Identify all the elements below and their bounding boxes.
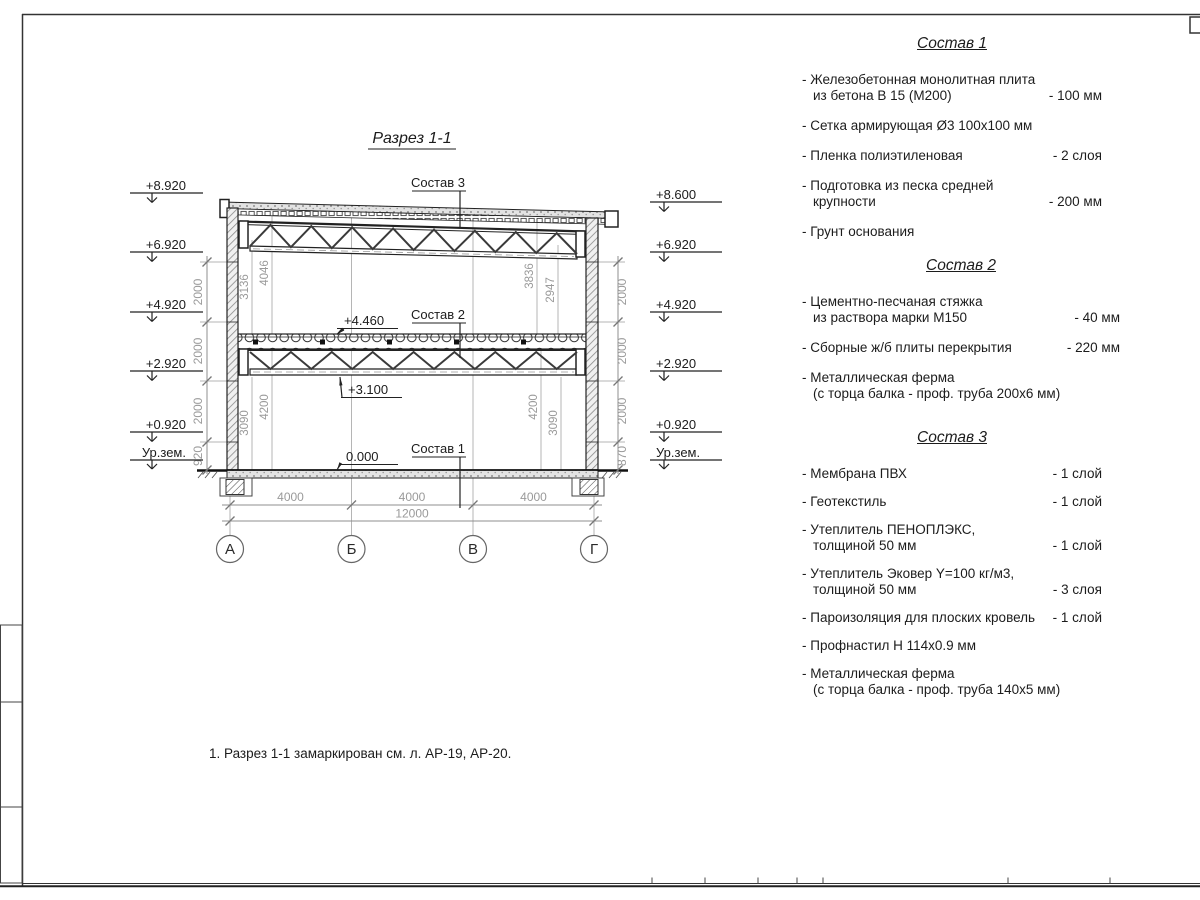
floor-slab-hollow-core <box>238 334 586 349</box>
grid-letter: В <box>468 541 478 558</box>
composition-title: Состав 1 <box>802 34 1102 54</box>
svg-text:+4.920: +4.920 <box>656 297 696 312</box>
composition-item: - Пленка полиэтиленовая - 2 слоя <box>802 148 1102 164</box>
composition-item: - Металлическая ферма (с торца балка - п… <box>802 370 1120 402</box>
drawing-title: Разрез 1-1 <box>368 130 456 149</box>
dim-label: 4200 <box>528 394 540 420</box>
composition-item: - Грунт основания <box>802 224 1102 240</box>
grid-letter: Г <box>590 541 598 558</box>
wall-right <box>586 218 598 470</box>
composition-item: - Сетка армирующая Ø3 100x100 мм <box>802 118 1102 134</box>
svg-text:+2.920: +2.920 <box>656 356 696 371</box>
elevation-marker: +2.920 <box>650 356 722 381</box>
elevation-marker: +6.920 <box>650 237 722 262</box>
dim-label: 4046 <box>259 260 271 286</box>
span-dim: 4000 <box>520 490 547 504</box>
composition-title: Состав 3 <box>802 428 1102 448</box>
elevation-marker: +6.920 <box>130 237 203 262</box>
wall-left <box>227 208 238 470</box>
floor-truss <box>239 349 585 375</box>
svg-text:+8.920: +8.920 <box>146 178 186 193</box>
elevation-marker: +8.920 <box>130 178 203 203</box>
composition-item: - Профнастил Н 114x0.9 мм <box>802 638 1102 654</box>
composition-1: Состав 1 - Железобетонная монолитная пли… <box>802 34 1102 254</box>
dim-label: 870 <box>615 446 629 466</box>
dim-label: 2000 <box>191 337 205 364</box>
dim-label: 2000 <box>191 278 205 305</box>
roof-truss <box>239 221 585 259</box>
total-dim: 12000 <box>395 507 429 521</box>
span-dim: 4000 <box>277 490 304 504</box>
roof-right-cap <box>605 211 618 227</box>
composition-item: - Железобетонная монолитная плита из бет… <box>802 72 1102 104</box>
dim-label: 2947 <box>545 277 557 303</box>
composition-item: - Сборные ж/б плиты перекрытия - 220 мм <box>802 340 1120 356</box>
spot-floor: 0.000 <box>346 449 379 464</box>
dim-label: 3090 <box>548 410 560 436</box>
svg-text:+2.920: +2.920 <box>146 356 186 371</box>
composition-item: - Пароизоляция для плоских кровель - 1 с… <box>802 610 1102 626</box>
dim-label: 4200 <box>259 394 271 420</box>
dim-label: 2000 <box>191 397 205 424</box>
dim-label: 3836 <box>524 263 536 289</box>
dim-label: 3136 <box>239 274 251 300</box>
layer-label-mid: Состав 2 <box>411 307 465 322</box>
grid-letter: А <box>225 541 235 558</box>
composition-item: - Мембрана ПВХ - 1 слой <box>802 466 1102 482</box>
svg-text:+0.920: +0.920 <box>146 417 186 432</box>
svg-text:Ур.зем.: Ур.зем. <box>142 445 186 460</box>
drawing-sheet: { "sheet": { "note": "1. Разрез 1-1 зама… <box>0 0 1200 900</box>
svg-text:+6.920: +6.920 <box>146 237 186 252</box>
elevation-markers-right: +8.600 +6.920 +4.920 +2.920 +0.920 Ур.зе… <box>650 187 722 469</box>
spot-truss-bottom: +3.100 <box>348 382 388 397</box>
svg-text:Ур.зем.: Ур.зем. <box>656 445 700 460</box>
layer-label-top: Состав 3 <box>411 175 465 190</box>
composition-item: - Геотекстиль - 1 слой <box>802 494 1102 510</box>
dim-label: 2000 <box>615 397 629 424</box>
composition-item: - Подготовка из песка средней крупности … <box>802 178 1102 210</box>
elevation-marker: +0.920 <box>650 417 722 442</box>
svg-text:+0.920: +0.920 <box>656 417 696 432</box>
dim-label: 920 <box>191 446 205 466</box>
dim-label: 3090 <box>239 410 251 436</box>
composition-item: - Утеплитель ПЕНОПЛЭКС, толщиной 50 мм -… <box>802 522 1102 554</box>
elevation-markers-left: +8.920 +6.920 +4.920 +2.920 +0.920 Ур.зе… <box>130 178 203 469</box>
sheet-note: 1. Разрез 1-1 замаркирован см. л. АР-19,… <box>209 746 511 761</box>
composition-item: - Металлическая ферма (с торца балка - п… <box>802 666 1102 698</box>
layer-label-bottom: Состав 1 <box>411 441 465 456</box>
composition-title: Состав 2 <box>802 256 1120 276</box>
elevation-marker: Ур.зем. <box>650 445 722 469</box>
composition-2: Состав 2 - Цементно-песчаная стяжка из р… <box>802 256 1120 416</box>
elevation-marker: +4.920 <box>650 297 722 322</box>
svg-text:+6.920: +6.920 <box>656 237 696 252</box>
svg-text:+8.600: +8.600 <box>656 187 696 202</box>
grid-letter: Б <box>347 541 357 558</box>
composition-item: - Утеплитель Эковер Y=100 кг/м3, толщино… <box>802 566 1102 598</box>
elevation-marker: +8.600 <box>650 187 722 212</box>
svg-text:+4.920: +4.920 <box>146 297 186 312</box>
corner-stamp-box <box>1190 17 1200 33</box>
composition-item: - Цементно-песчаная стяжка из раствора м… <box>802 294 1120 326</box>
grid-bubbles: А Б В Г <box>217 536 608 563</box>
dim-label: 2000 <box>615 337 629 364</box>
svg-text:Разрез 1-1: Разрез 1-1 <box>372 130 451 147</box>
bottom-dimensions: 4000 4000 4000 12000 А Б В Г <box>217 490 608 563</box>
span-dim: 4000 <box>399 490 426 504</box>
titleblock-ticks <box>652 878 1110 884</box>
composition-3: Состав 3 - Мембрана ПВХ - 1 слой - Геоте… <box>802 428 1102 710</box>
dim-label: 2000 <box>615 278 629 305</box>
spot-slab-top: +4.460 <box>344 313 384 328</box>
